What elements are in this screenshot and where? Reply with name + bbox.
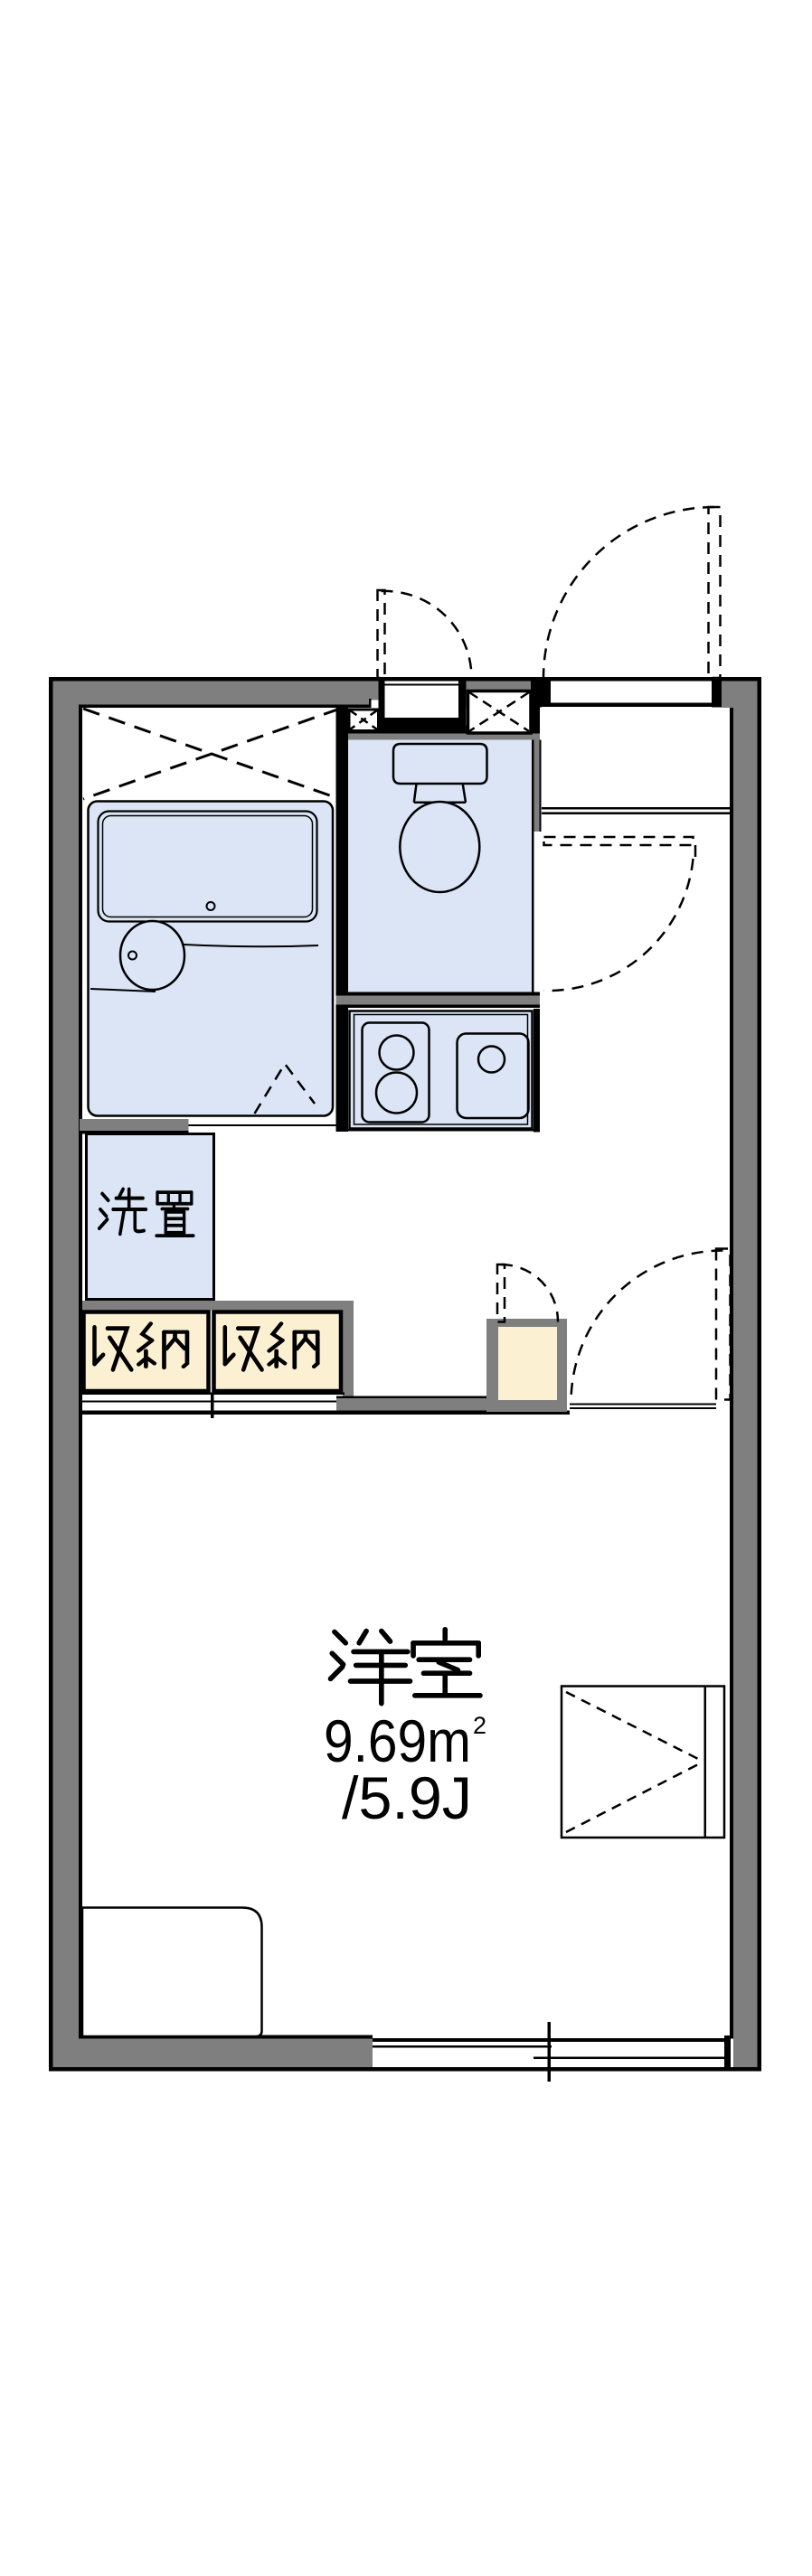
svg-text:2: 2 xyxy=(473,1712,486,1739)
svg-text:/5.9J: /5.9J xyxy=(342,1764,472,1831)
